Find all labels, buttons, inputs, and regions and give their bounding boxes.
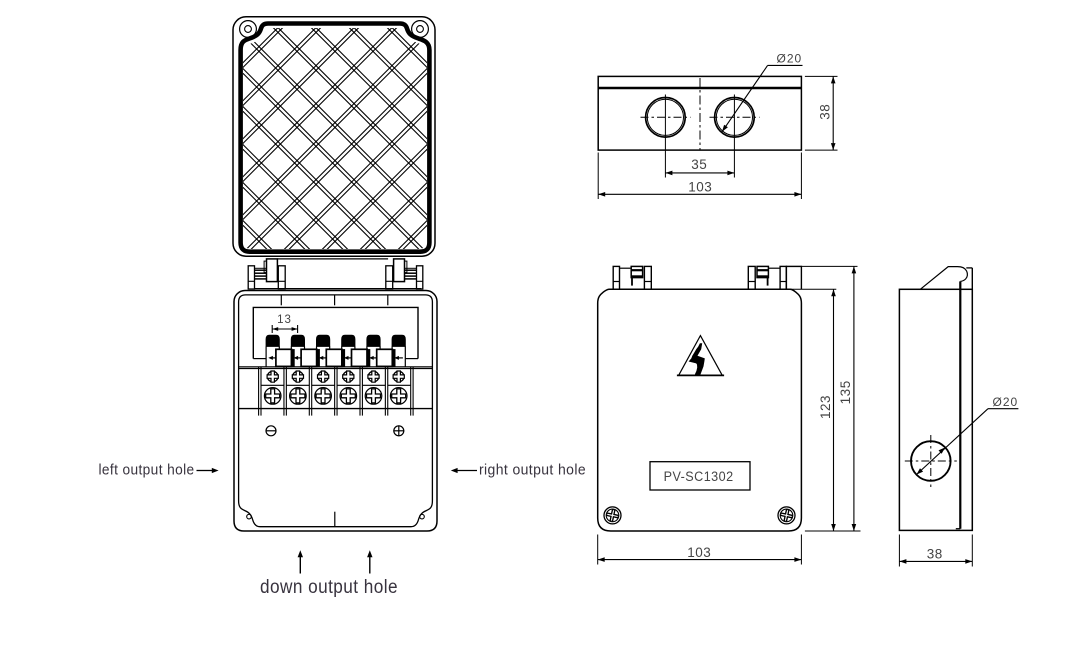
svg-text:38: 38 xyxy=(818,104,833,120)
svg-text:PV-SC1302: PV-SC1302 xyxy=(664,469,734,484)
svg-text:103: 103 xyxy=(687,545,711,560)
svg-text:103: 103 xyxy=(688,180,712,195)
svg-text:135: 135 xyxy=(838,380,853,404)
svg-text:right output hole: right output hole xyxy=(479,463,586,479)
svg-text:down output hole: down output hole xyxy=(260,576,398,598)
svg-text:Ø20: Ø20 xyxy=(777,52,803,66)
svg-text:left output hole: left output hole xyxy=(99,463,195,479)
svg-text:13: 13 xyxy=(277,314,292,326)
svg-text:Ø20: Ø20 xyxy=(993,395,1019,409)
svg-text:38: 38 xyxy=(927,547,943,562)
svg-text:35: 35 xyxy=(691,157,707,172)
svg-text:123: 123 xyxy=(818,395,833,419)
